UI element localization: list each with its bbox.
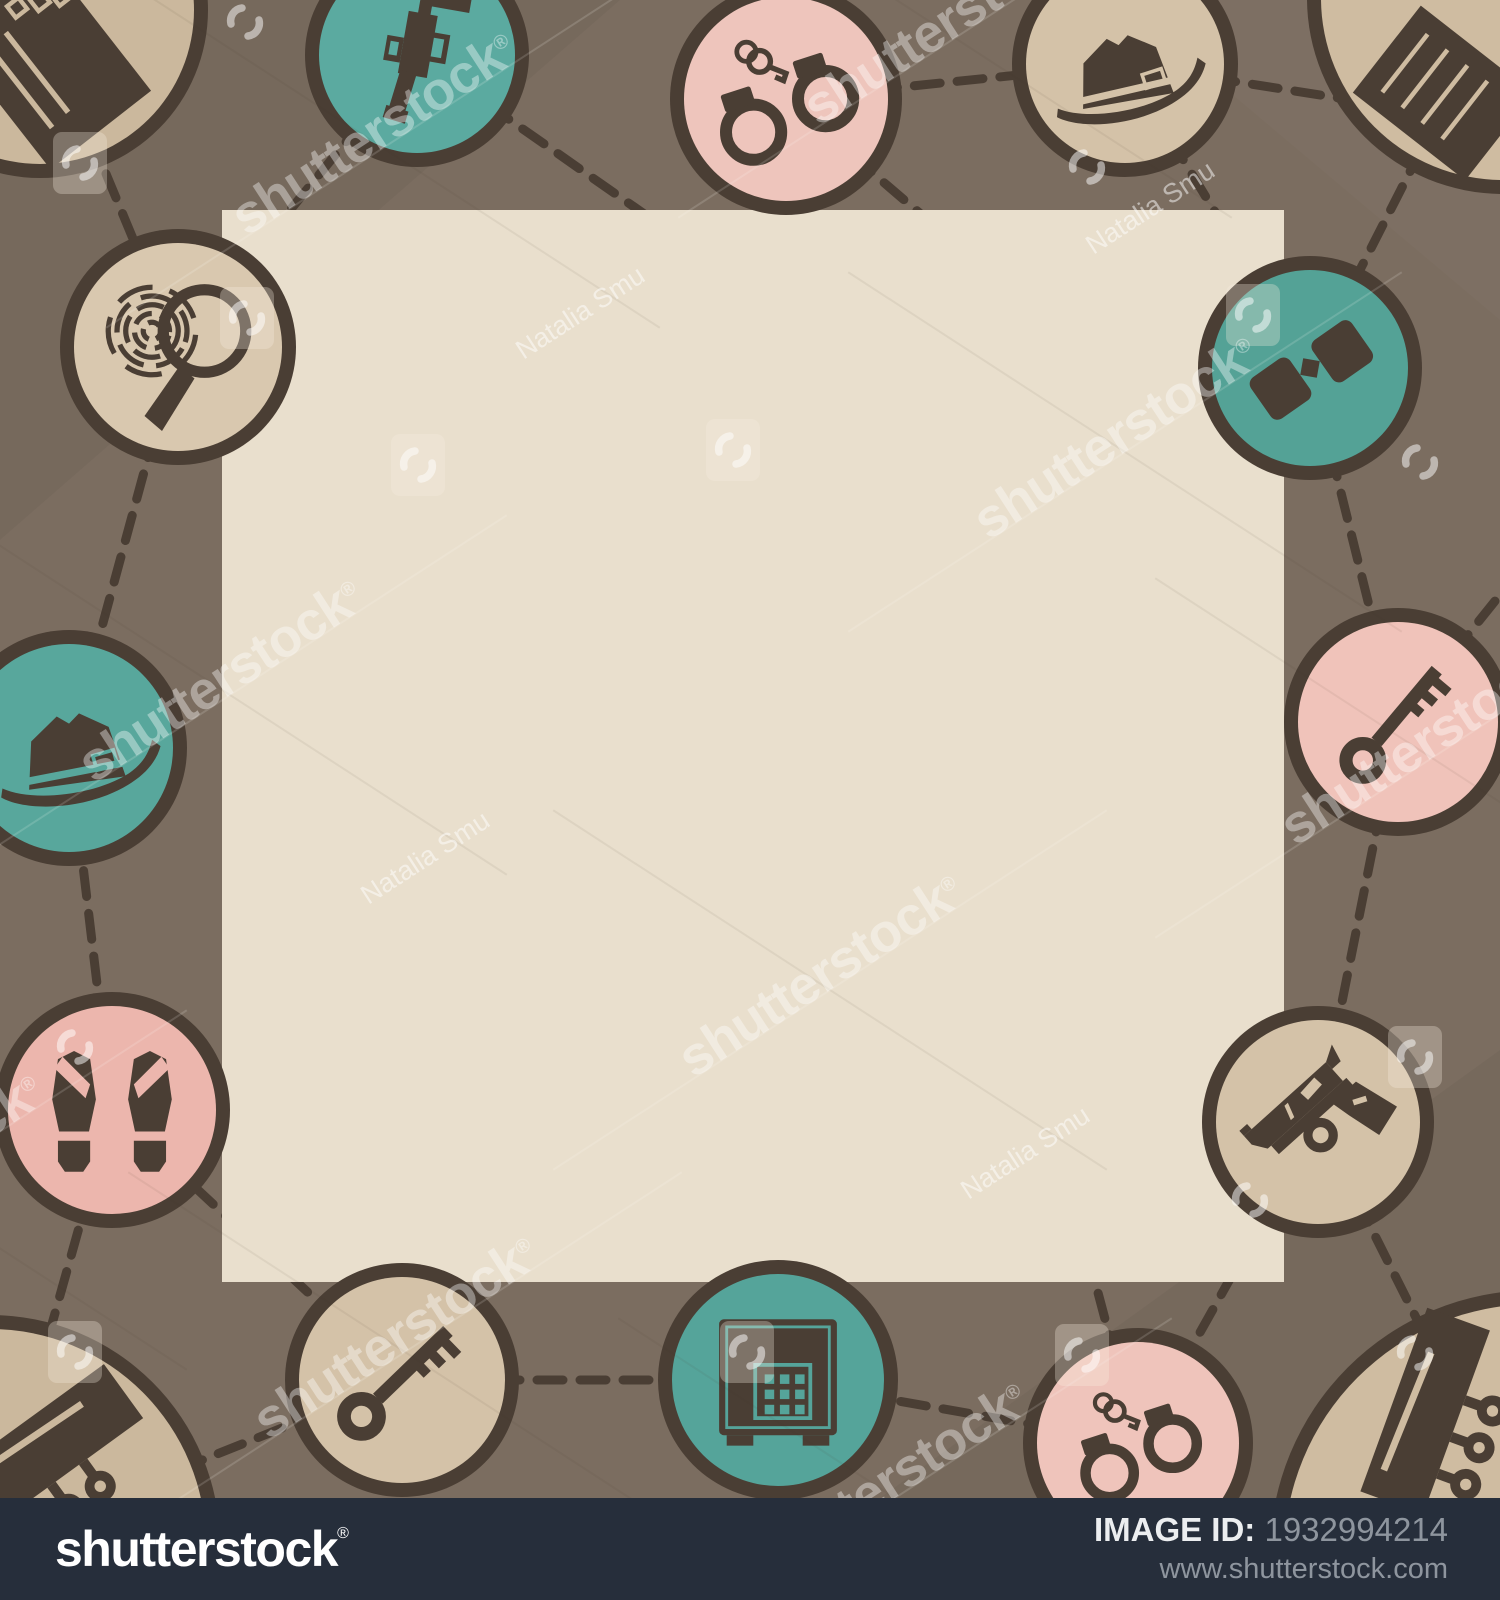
- stock-image-canvas: shutterstock®shutterstock®shutterstock®s…: [0, 0, 1500, 1600]
- image-id-line: IMAGE ID: 1932994214: [1094, 1511, 1448, 1549]
- watermark-footer: shutterstock® IMAGE ID: 1932994214 www.s…: [0, 1498, 1500, 1600]
- registered-trademark-symbol: ®: [337, 1525, 349, 1542]
- shutterstock-mark-icon: [220, 287, 274, 349]
- shutterstock-logo-text: shutterstock: [55, 1521, 337, 1577]
- frame-center-panel: [222, 210, 1284, 1282]
- website-url: www.shutterstock.com: [1094, 1553, 1448, 1586]
- shutterstock-mark-icon: [1055, 1324, 1109, 1386]
- shutterstock-mark-icon: [1388, 1026, 1442, 1088]
- footprints-circle-fill: [8, 1006, 216, 1214]
- shutterstock-mark-icon: [1226, 284, 1280, 346]
- image-id-value: 1932994214: [1264, 1511, 1448, 1548]
- image-meta: IMAGE ID: 1932994214 www.shutterstock.co…: [1094, 1511, 1448, 1586]
- shutterstock-mark-icon: [706, 419, 760, 481]
- shutterstock-mark-icon: [53, 132, 107, 194]
- frame-artwork: shutterstock®shutterstock®shutterstock®s…: [0, 0, 1500, 1498]
- shutterstock-mark-icon: [391, 434, 445, 496]
- shutterstock-logo: shutterstock®: [55, 1520, 349, 1578]
- shutterstock-mark-icon: [720, 1321, 774, 1383]
- shutterstock-mark-icon: [48, 1321, 102, 1383]
- image-id-label: IMAGE ID:: [1094, 1511, 1255, 1548]
